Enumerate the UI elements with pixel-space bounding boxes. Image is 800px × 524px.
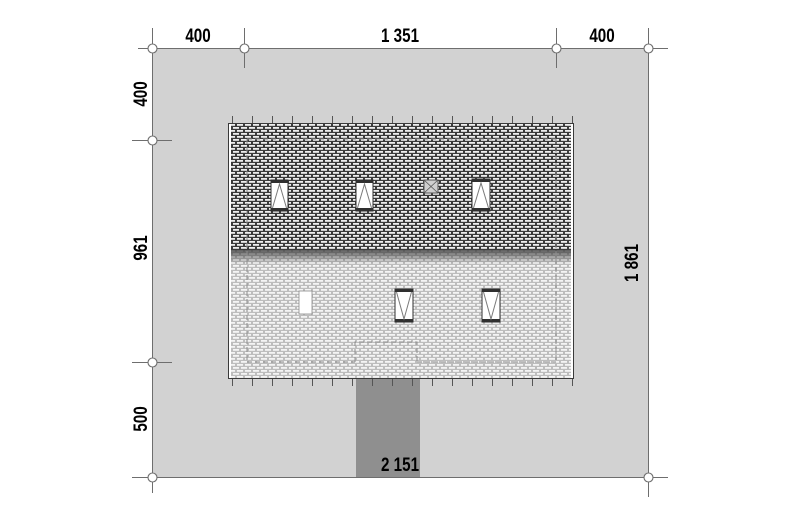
ridge-shading [231, 250, 571, 264]
dimension-node [644, 473, 653, 482]
dimension-node [552, 44, 561, 53]
dimension-node [148, 473, 157, 482]
dimension-node [148, 44, 157, 53]
roof-window-upper-3 [472, 179, 490, 211]
dimension-node [148, 136, 157, 145]
dim-label-bottom-total: 2 151 [381, 455, 419, 477]
dim-label-left-bottom: 500 [131, 406, 153, 431]
chimney-icon [424, 180, 438, 193]
skylight [299, 291, 312, 314]
roof-window-lower-1 [395, 289, 413, 322]
roof-window-upper-2 [356, 180, 373, 211]
dim-label-top-center: 1 351 [381, 26, 419, 48]
dim-label-top-right: 400 [589, 26, 614, 48]
dimension-node [644, 44, 653, 53]
dimension-node [148, 358, 157, 367]
drawing-canvas [0, 0, 800, 524]
dim-label-right-total: 1 861 [622, 244, 644, 282]
dimension-node [240, 44, 249, 53]
site-plan-drawing: 400 1 351 400 400 961 500 1 861 2 151 [0, 0, 800, 524]
dim-label-top-left: 400 [185, 26, 210, 48]
roof-plan [228, 120, 574, 383]
roof-window-upper-1 [271, 180, 288, 211]
dim-label-left-middle: 961 [131, 235, 153, 260]
roof-window-lower-2 [482, 289, 500, 322]
dim-label-left-top: 400 [131, 81, 153, 106]
